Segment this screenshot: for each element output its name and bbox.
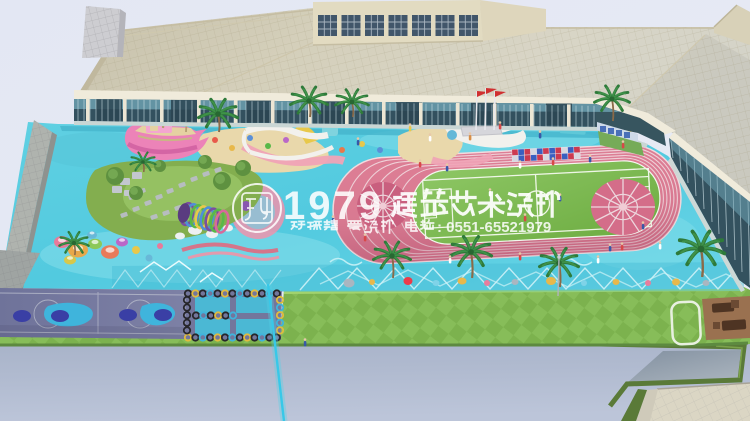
- svg-text:: 0551-65521979: : 0551-65521979: [437, 219, 551, 236]
